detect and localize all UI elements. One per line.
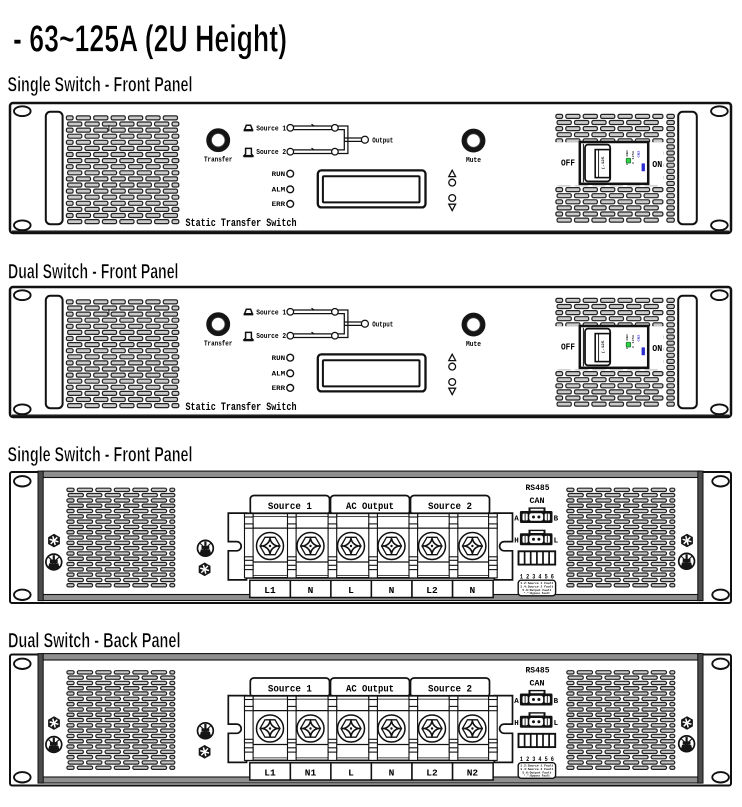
svg-text:Dual Switch - Front Panel: Dual Switch - Front Panel: [8, 260, 179, 283]
svg-text:RUN: RUN: [272, 171, 286, 178]
svg-text:1 2 3 4 5 6: 1 2 3 4 5 6: [520, 756, 554, 763]
svg-text:ERR: ERR: [272, 385, 286, 392]
svg-text:C 125A: C 125A: [631, 151, 635, 164]
svg-text:Source 2: Source 2: [256, 149, 286, 157]
svg-text:*.*:Bypass Fault: *.*:Bypass Fault: [524, 774, 550, 778]
svg-text:OFF: OFF: [561, 159, 575, 169]
svg-text:Output: Output: [372, 321, 393, 329]
svg-text:Source 1: Source 1: [268, 502, 312, 513]
svg-text:ERR: ERR: [272, 201, 286, 208]
svg-text:Source 2: Source 2: [428, 685, 472, 696]
svg-text:L1: L1: [264, 768, 276, 779]
svg-text:*.*:Bypass Fault: *.*:Bypass Fault: [524, 591, 550, 595]
svg-text:L: L: [348, 585, 354, 596]
svg-text:RUN: RUN: [272, 355, 286, 362]
svg-text:N: N: [389, 768, 395, 779]
svg-text:ON: ON: [652, 160, 662, 170]
svg-text:L: L: [554, 720, 559, 728]
svg-text:Source 1: Source 1: [256, 309, 286, 317]
svg-text:ON: ON: [652, 344, 662, 354]
svg-text:CAN: CAN: [530, 679, 545, 688]
svg-text:(-125: (-125: [601, 157, 606, 170]
svg-text:CAN: CAN: [530, 497, 545, 506]
svg-text:L: L: [554, 538, 559, 546]
svg-text:ALM: ALM: [272, 187, 286, 194]
svg-text:Static Transfer Switch: Static Transfer Switch: [186, 402, 297, 414]
svg-text:(-125: (-125: [601, 341, 606, 354]
svg-text:ALM: ALM: [272, 371, 286, 378]
svg-text:Mute: Mute: [466, 341, 481, 349]
svg-text:B: B: [554, 698, 559, 706]
svg-text:N2: N2: [467, 768, 479, 779]
svg-text:AC Output: AC Output: [346, 502, 394, 513]
svg-text:RS485: RS485: [526, 666, 550, 675]
svg-text:A: A: [514, 698, 519, 706]
svg-text:L2: L2: [426, 585, 438, 596]
svg-text:N: N: [308, 585, 314, 596]
svg-text:B: B: [554, 515, 559, 523]
svg-text:Output: Output: [372, 137, 393, 145]
svg-text:N: N: [389, 585, 395, 596]
svg-text:Single Switch - Front Panel: Single Switch - Front Panel: [8, 443, 193, 466]
svg-text:CB2: CB2: [636, 150, 640, 157]
svg-text:H: H: [514, 720, 519, 728]
svg-text:Source 1: Source 1: [256, 125, 286, 133]
svg-text:H: H: [514, 538, 519, 546]
svg-text:L1: L1: [264, 585, 276, 596]
svg-text:L: L: [348, 768, 354, 779]
svg-text:C 125A: C 125A: [631, 335, 635, 348]
svg-text:CB2: CB2: [636, 334, 640, 341]
svg-text:Static Transfer Switch: Static Transfer Switch: [186, 218, 297, 230]
svg-text:Single Switch - Front Panel: Single Switch - Front Panel: [8, 74, 193, 97]
svg-text:Source 2: Source 2: [256, 333, 286, 341]
svg-text:Mute: Mute: [466, 157, 481, 165]
svg-text:Source 1: Source 1: [268, 685, 312, 696]
svg-text:RS485: RS485: [526, 484, 550, 493]
svg-text:A: A: [514, 515, 519, 523]
svg-text:OFF: OFF: [561, 343, 575, 353]
svg-text:Source 2: Source 2: [428, 502, 472, 513]
svg-text:Transfer: Transfer: [204, 340, 233, 348]
svg-text:1 2 3 4 5 6: 1 2 3 4 5 6: [520, 573, 554, 580]
svg-text:L2: L2: [426, 768, 438, 779]
svg-text:Dual Switch - Back Panel: Dual Switch - Back Panel: [8, 630, 181, 653]
svg-text:Transfer: Transfer: [204, 156, 233, 164]
svg-text:- 63~125A (2U Height): - 63~125A (2U Height): [13, 19, 287, 61]
svg-text:N: N: [470, 585, 476, 596]
svg-text:AC Output: AC Output: [346, 685, 394, 696]
svg-text:N1: N1: [305, 768, 317, 779]
